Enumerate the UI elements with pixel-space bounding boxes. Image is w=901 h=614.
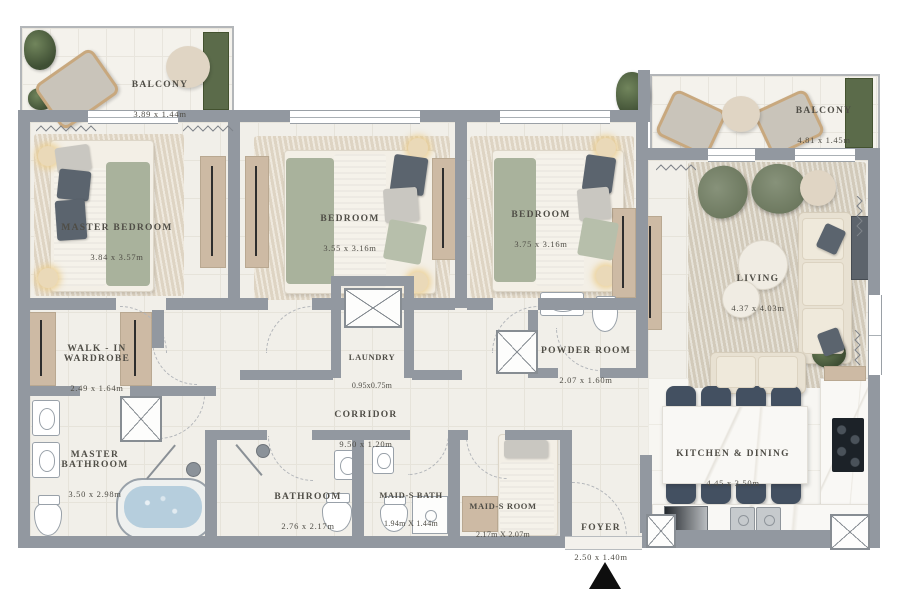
wall [868,155,880,295]
round-table-icon [722,96,760,132]
room-dims: 9.50 x 1.20m [334,439,397,449]
window [708,148,755,162]
shower-head-icon [256,444,270,458]
wall [420,110,466,122]
room-name: BATHROOM [274,492,341,502]
room-dims: 1.94m X 1.44m [364,519,458,528]
wall [331,276,414,286]
room-label-maids-room: MAID-S ROOM 2.17m X 2.07m [455,483,551,557]
window [868,295,882,375]
room-dims: 4.37 x 4.03m [731,303,784,313]
room-dims: 3.75 x 3.16m [511,239,570,249]
wall [638,148,708,160]
room-name: WALK - IN WARDROBE [51,344,143,364]
wardrobe-rail [622,216,624,288]
zigzag-mark [855,196,864,240]
wall [18,110,30,548]
shaft-icon [830,514,870,550]
wall [636,122,648,378]
pillow [577,187,612,222]
window [500,110,610,124]
room-name: MAID-S BATH [364,490,458,500]
room-label-corridor: CORRIDOR 9.50 x 1.20m [334,392,397,467]
kitchen-sink-icon [730,507,755,532]
room-name: KITCHEN & DINING [676,449,790,459]
room-dims: 4.81 x 1.45m [796,135,853,145]
zigzag-mark [36,124,100,133]
room-name: MASTER BATHROOM [52,450,138,470]
wardrobe [432,158,456,260]
room-label-living: LIVING 4.37 x 4.03m [731,256,784,331]
wall [240,370,333,380]
plant-icon [24,30,56,70]
room-dims: 3.50 x 2.98m [52,489,138,499]
wall [18,298,116,310]
room-name: CORRIDOR [334,410,397,420]
room-dims: 0.95x0.75m [335,381,409,390]
sofa-cushion [802,262,844,306]
room-name: FOYER [574,523,627,533]
room-label-balcony2: BALCONY 4.81 x 1.45m [796,88,853,163]
room-name: BALCONY [132,80,189,90]
cooktop-icon [832,418,864,472]
room-name: BEDROOM [320,214,379,224]
wall [638,70,650,122]
wall [505,430,560,440]
room-dims: 4.45 x 3.50m [676,478,790,488]
wardrobe [200,156,226,268]
lamp-icon [38,268,58,288]
room-name: MAID-S ROOM [455,501,551,511]
room-label-kitchen-dining: KITCHEN & DINING 4.45 x 3.50m [676,431,790,506]
wall [467,298,493,310]
wall [560,430,572,548]
room-label-balcony1: BALCONY 3.89 x 1.44m [132,62,189,137]
room-name: LIVING [731,274,784,284]
lamp-icon [408,138,428,158]
room-dims: 3.84 x 3.57m [57,252,177,262]
room-label-bedroom2: BEDROOM 3.55 x 3.16m [320,196,379,271]
pillow [383,219,427,265]
wardrobe-rail [211,166,213,256]
room-dims: 2.49 x 1.64m [51,383,143,393]
shower-head-icon [186,462,201,477]
wall [152,310,164,348]
wall [448,430,468,440]
wardrobe-rail [255,166,257,256]
pillow [504,440,548,458]
room-label-bedroom3: BEDROOM 3.75 x 3.16m [511,192,570,267]
room-dims: 2.17m X 2.07m [455,530,551,539]
room-label-master-bedroom: MASTER BEDROOM 3.84 x 3.57m [57,205,177,280]
wardrobe [612,208,636,298]
room-dims: 2.50 x 1.40m [574,552,627,562]
floor-plan-canvas: { "plan_type": "apartment-floor-plan", "… [0,0,901,614]
closet-icon [496,330,538,374]
room-name: BEDROOM [511,210,570,220]
room-label-bathroom: BATHROOM 2.76 x 2.17m [274,474,341,549]
wall [228,122,240,308]
wall [466,110,500,122]
room-name: POWDER ROOM [541,346,631,356]
pillow [383,187,419,223]
wardrobe [245,156,269,268]
zigzag-mark [183,124,235,133]
wall [205,430,217,548]
laundry-closet-icon [344,288,402,328]
room-dims: 2.07 x 1.60m [541,375,631,385]
wall [217,430,267,440]
room-dims: 3.55 x 3.16m [320,243,379,253]
window [290,110,420,124]
room-name: BALCONY [796,106,853,116]
zigzag-mark [853,330,862,370]
zigzag-mark [656,163,696,172]
room-label-walkin-wardrobe: WALK - IN WARDROBE 2.49 x 1.64m [51,326,143,411]
pillow [577,217,619,261]
wall [244,110,290,122]
sofa-cushion [758,356,798,388]
wall [166,298,240,310]
wardrobe-rail [40,320,42,376]
room-label-master-bathroom: MASTER BATHROOM 3.50 x 2.98m [52,432,138,517]
side-table-icon [800,170,836,206]
kitchen-sink-icon [756,507,781,532]
room-dims: 3.89 x 1.44m [132,109,189,119]
console-rail [649,226,651,318]
wall [412,370,462,380]
wall [18,110,88,122]
sofa-cushion [716,356,756,388]
room-label-powder-room: POWDER ROOM 2.07 x 1.60m [541,328,631,403]
room-dims: 2.76 x 2.17m [274,521,341,531]
shaft-icon [646,514,676,548]
pillow [57,168,92,201]
wall [538,298,636,310]
wall [755,148,795,160]
wall [240,298,268,310]
wall [455,122,467,308]
room-name: LAUNDRY [335,352,409,362]
room-name: MASTER BEDROOM [57,223,177,233]
entrance-arrow-icon [589,562,621,589]
wardrobe-rail [442,168,444,248]
room-label-maids-bath: MAID-S BATH 1.94m X 1.44m [364,472,458,546]
